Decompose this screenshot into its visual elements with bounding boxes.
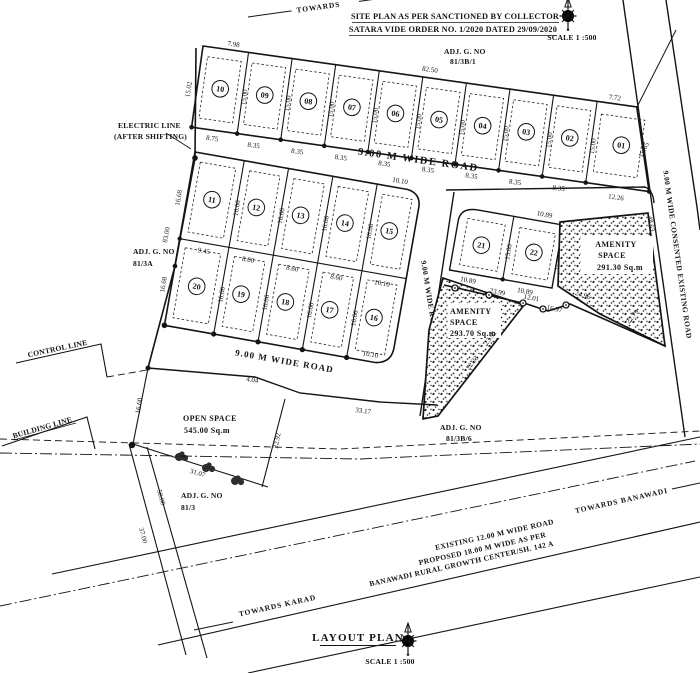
dim: 16.66 <box>305 301 316 318</box>
plot-18: 18 <box>276 292 295 311</box>
dim: 10.89 <box>536 209 553 220</box>
title-block: SITE PLAN AS PER SANCTIONED BY COLLECTOR… <box>349 0 597 42</box>
dim: 9.45 <box>197 246 211 256</box>
open-space: OPEN SPACE 545.00 Sq.m 4.04 33.17 16.60 … <box>129 366 437 659</box>
plot-08: 08 <box>299 92 318 111</box>
plot-20: 20 <box>187 277 206 296</box>
towards-karad-label: TOWARDS KARAD <box>238 593 317 619</box>
amenity-right-label2: SPACE <box>598 251 626 260</box>
towards-top-label: TOWARDS <box>296 0 341 15</box>
svg-text:16: 16 <box>369 313 378 323</box>
plot-21: 21 <box>472 236 491 255</box>
adj-gno-ne: ADJ. G. NO <box>444 47 486 56</box>
svg-text:06: 06 <box>391 109 400 119</box>
title-line2: SATARA VIDE ORDER NO. 1/2020 DATED 29/09… <box>349 25 557 34</box>
dim: 33.17 <box>355 406 372 416</box>
dim: 16.60 <box>134 397 144 414</box>
dim: 50.00 <box>155 489 167 507</box>
svg-text:11: 11 <box>207 195 216 205</box>
plot-05: 05 <box>430 110 449 129</box>
svg-text:12: 12 <box>252 203 261 213</box>
svg-text:17: 17 <box>325 305 334 315</box>
dim: 15.00 <box>239 88 249 105</box>
plot-01: 01 <box>612 136 631 155</box>
dim: 16.68 <box>173 189 184 206</box>
plot-15: 15 <box>380 221 399 240</box>
dim: 16.66 <box>276 207 287 224</box>
dim: 10.10 <box>362 349 379 360</box>
svg-text:18: 18 <box>281 297 290 307</box>
road-middle-label: 9.00 M WIDE ROAD <box>234 347 334 374</box>
electric-line-label2: (AFTER SHIFTING) <box>114 132 187 141</box>
plot-17: 17 <box>320 300 339 319</box>
plot-12: 12 <box>247 198 266 217</box>
dim: 15.00 <box>457 119 467 136</box>
dim: 15.00 <box>501 125 511 142</box>
dim: 22.92 <box>271 432 282 450</box>
dim: 8.60 <box>330 272 344 282</box>
svg-text:02: 02 <box>565 133 574 143</box>
svg-text:22: 22 <box>529 248 538 258</box>
plot-07: 07 <box>343 98 362 117</box>
dim: 15.00 <box>326 101 336 118</box>
title-line1: SITE PLAN AS PER SANCTIONED BY COLLECTOR <box>351 12 560 21</box>
dim: 10.10 <box>392 176 409 187</box>
dim: 16.66 <box>216 286 227 303</box>
plot-04: 04 <box>473 116 492 135</box>
dim: 82.50 <box>422 65 439 75</box>
electric-line-label: ELECTRIC LINE <box>118 121 181 130</box>
dim: 8.35 <box>508 177 522 187</box>
open-space-label: OPEN SPACE <box>183 414 237 423</box>
building-line-label: BUILDING LINE <box>12 415 74 441</box>
dim: 16.66 <box>320 215 331 232</box>
dim: 15.02 <box>184 81 194 98</box>
footer-title: LAYOUT PLAN SCALE 1 :500 <box>312 623 416 666</box>
dim: 16.97 <box>546 303 564 314</box>
road-consented-label: 9.00 M WIDE CONSENTED EXISTING ROAD <box>661 170 694 340</box>
dim: 16.66 <box>365 223 376 240</box>
svg-text:20: 20 <box>192 282 201 292</box>
dim: 8.35 <box>291 147 305 157</box>
plot-19: 19 <box>231 285 250 304</box>
layout-plan-sheet: TOWARDS SITE PLAN AS PER SANCTIONED BY C… <box>0 0 700 673</box>
scale-bottom: SCALE 1 :500 <box>365 657 414 666</box>
dim: 15.00 <box>414 113 424 130</box>
dim: 16.66 <box>261 294 272 311</box>
dim: 8.35 <box>334 153 348 163</box>
dim: 7.98 <box>227 39 241 49</box>
amenity-right-label: AMENITY <box>595 240 636 249</box>
dim: 8.60 <box>241 255 255 265</box>
plot-16: 16 <box>364 308 383 327</box>
dim: 15.00 <box>283 95 293 112</box>
scale-top: SCALE 1 :500 <box>547 33 596 42</box>
open-space-area: 545.00 Sq.m <box>184 426 230 435</box>
dim: 8.60 <box>285 264 299 274</box>
plot-13: 13 <box>291 206 310 225</box>
dim: 12.26 <box>608 192 625 202</box>
adj-gno-se-num: 81/3B/6 <box>446 434 472 443</box>
svg-text:13: 13 <box>296 210 305 220</box>
dim: 37.00 <box>137 527 149 545</box>
dim: 16.68 <box>158 276 169 293</box>
plot-03: 03 <box>517 122 536 141</box>
dim: 15.00 <box>503 243 514 260</box>
svg-text:09: 09 <box>260 90 269 100</box>
svg-text:19: 19 <box>236 289 245 299</box>
amenity-left-label: AMENITY <box>450 307 491 316</box>
svg-text:05: 05 <box>434 115 443 125</box>
dim: 10.10 <box>374 278 391 289</box>
svg-text:14: 14 <box>340 218 349 228</box>
svg-text:15: 15 <box>384 226 393 236</box>
dim: 15.00 <box>544 131 554 148</box>
plot-22: 22 <box>524 243 543 262</box>
svg-text:07: 07 <box>347 103 356 113</box>
adj-gno-ne-num: 81/3B/1 <box>450 57 476 66</box>
amenity-space-right: AMENITY SPACE 291.30 Sq.m 22.79 <box>558 213 665 346</box>
plot-10: 10 <box>211 79 230 98</box>
svg-text:21: 21 <box>477 240 486 250</box>
plot-06: 06 <box>386 104 405 123</box>
plot-09: 09 <box>255 86 274 105</box>
dim: 16.66 <box>232 199 243 216</box>
plot-14: 14 <box>335 214 354 233</box>
plot-02: 02 <box>560 129 579 148</box>
dim: 15.00 <box>370 107 380 124</box>
dim: 4.04 <box>246 375 260 385</box>
road-top-label: 9.00 M WIDE ROAD <box>357 147 479 175</box>
control-line-label: CONTROL LINE <box>27 338 88 359</box>
adj-gno-se: ADJ. G. NO <box>440 423 482 432</box>
adj-gno-s: ADJ. G. NO <box>181 491 223 500</box>
adj-gno-w-num: 81/3A <box>133 259 153 268</box>
plot-row-top: 10 09 08 07 06 05 04 03 02 01 7.98 82.50… <box>178 32 665 206</box>
dim-83: 83.00 <box>161 226 172 243</box>
north-compass-icon <box>560 0 577 31</box>
plot-11: 11 <box>202 190 221 209</box>
layout-plan-title: LAYOUT PLAN <box>312 632 404 644</box>
svg-text:04: 04 <box>478 121 487 131</box>
svg-text:08: 08 <box>304 96 313 106</box>
dim: 8.75 <box>206 134 220 144</box>
amenity-left-label2: SPACE <box>450 318 478 327</box>
amenity-right-area: 291.30 Sq.m <box>597 263 643 272</box>
dim: 16.66 <box>349 309 360 326</box>
dim: 7.72 <box>608 93 622 103</box>
svg-text:01: 01 <box>617 140 626 150</box>
adj-gno-s-num: 81/3 <box>181 503 195 512</box>
dim: 8.35 <box>247 141 261 151</box>
svg-text:03: 03 <box>522 127 531 137</box>
svg-text:10: 10 <box>216 84 225 94</box>
towards-banawadi-label: TOWARDS BANAWADI <box>574 486 669 515</box>
site-plan-drawing: TOWARDS SITE PLAN AS PER SANCTIONED BY C… <box>0 0 700 673</box>
adj-gno-w: ADJ. G. NO <box>133 247 175 256</box>
